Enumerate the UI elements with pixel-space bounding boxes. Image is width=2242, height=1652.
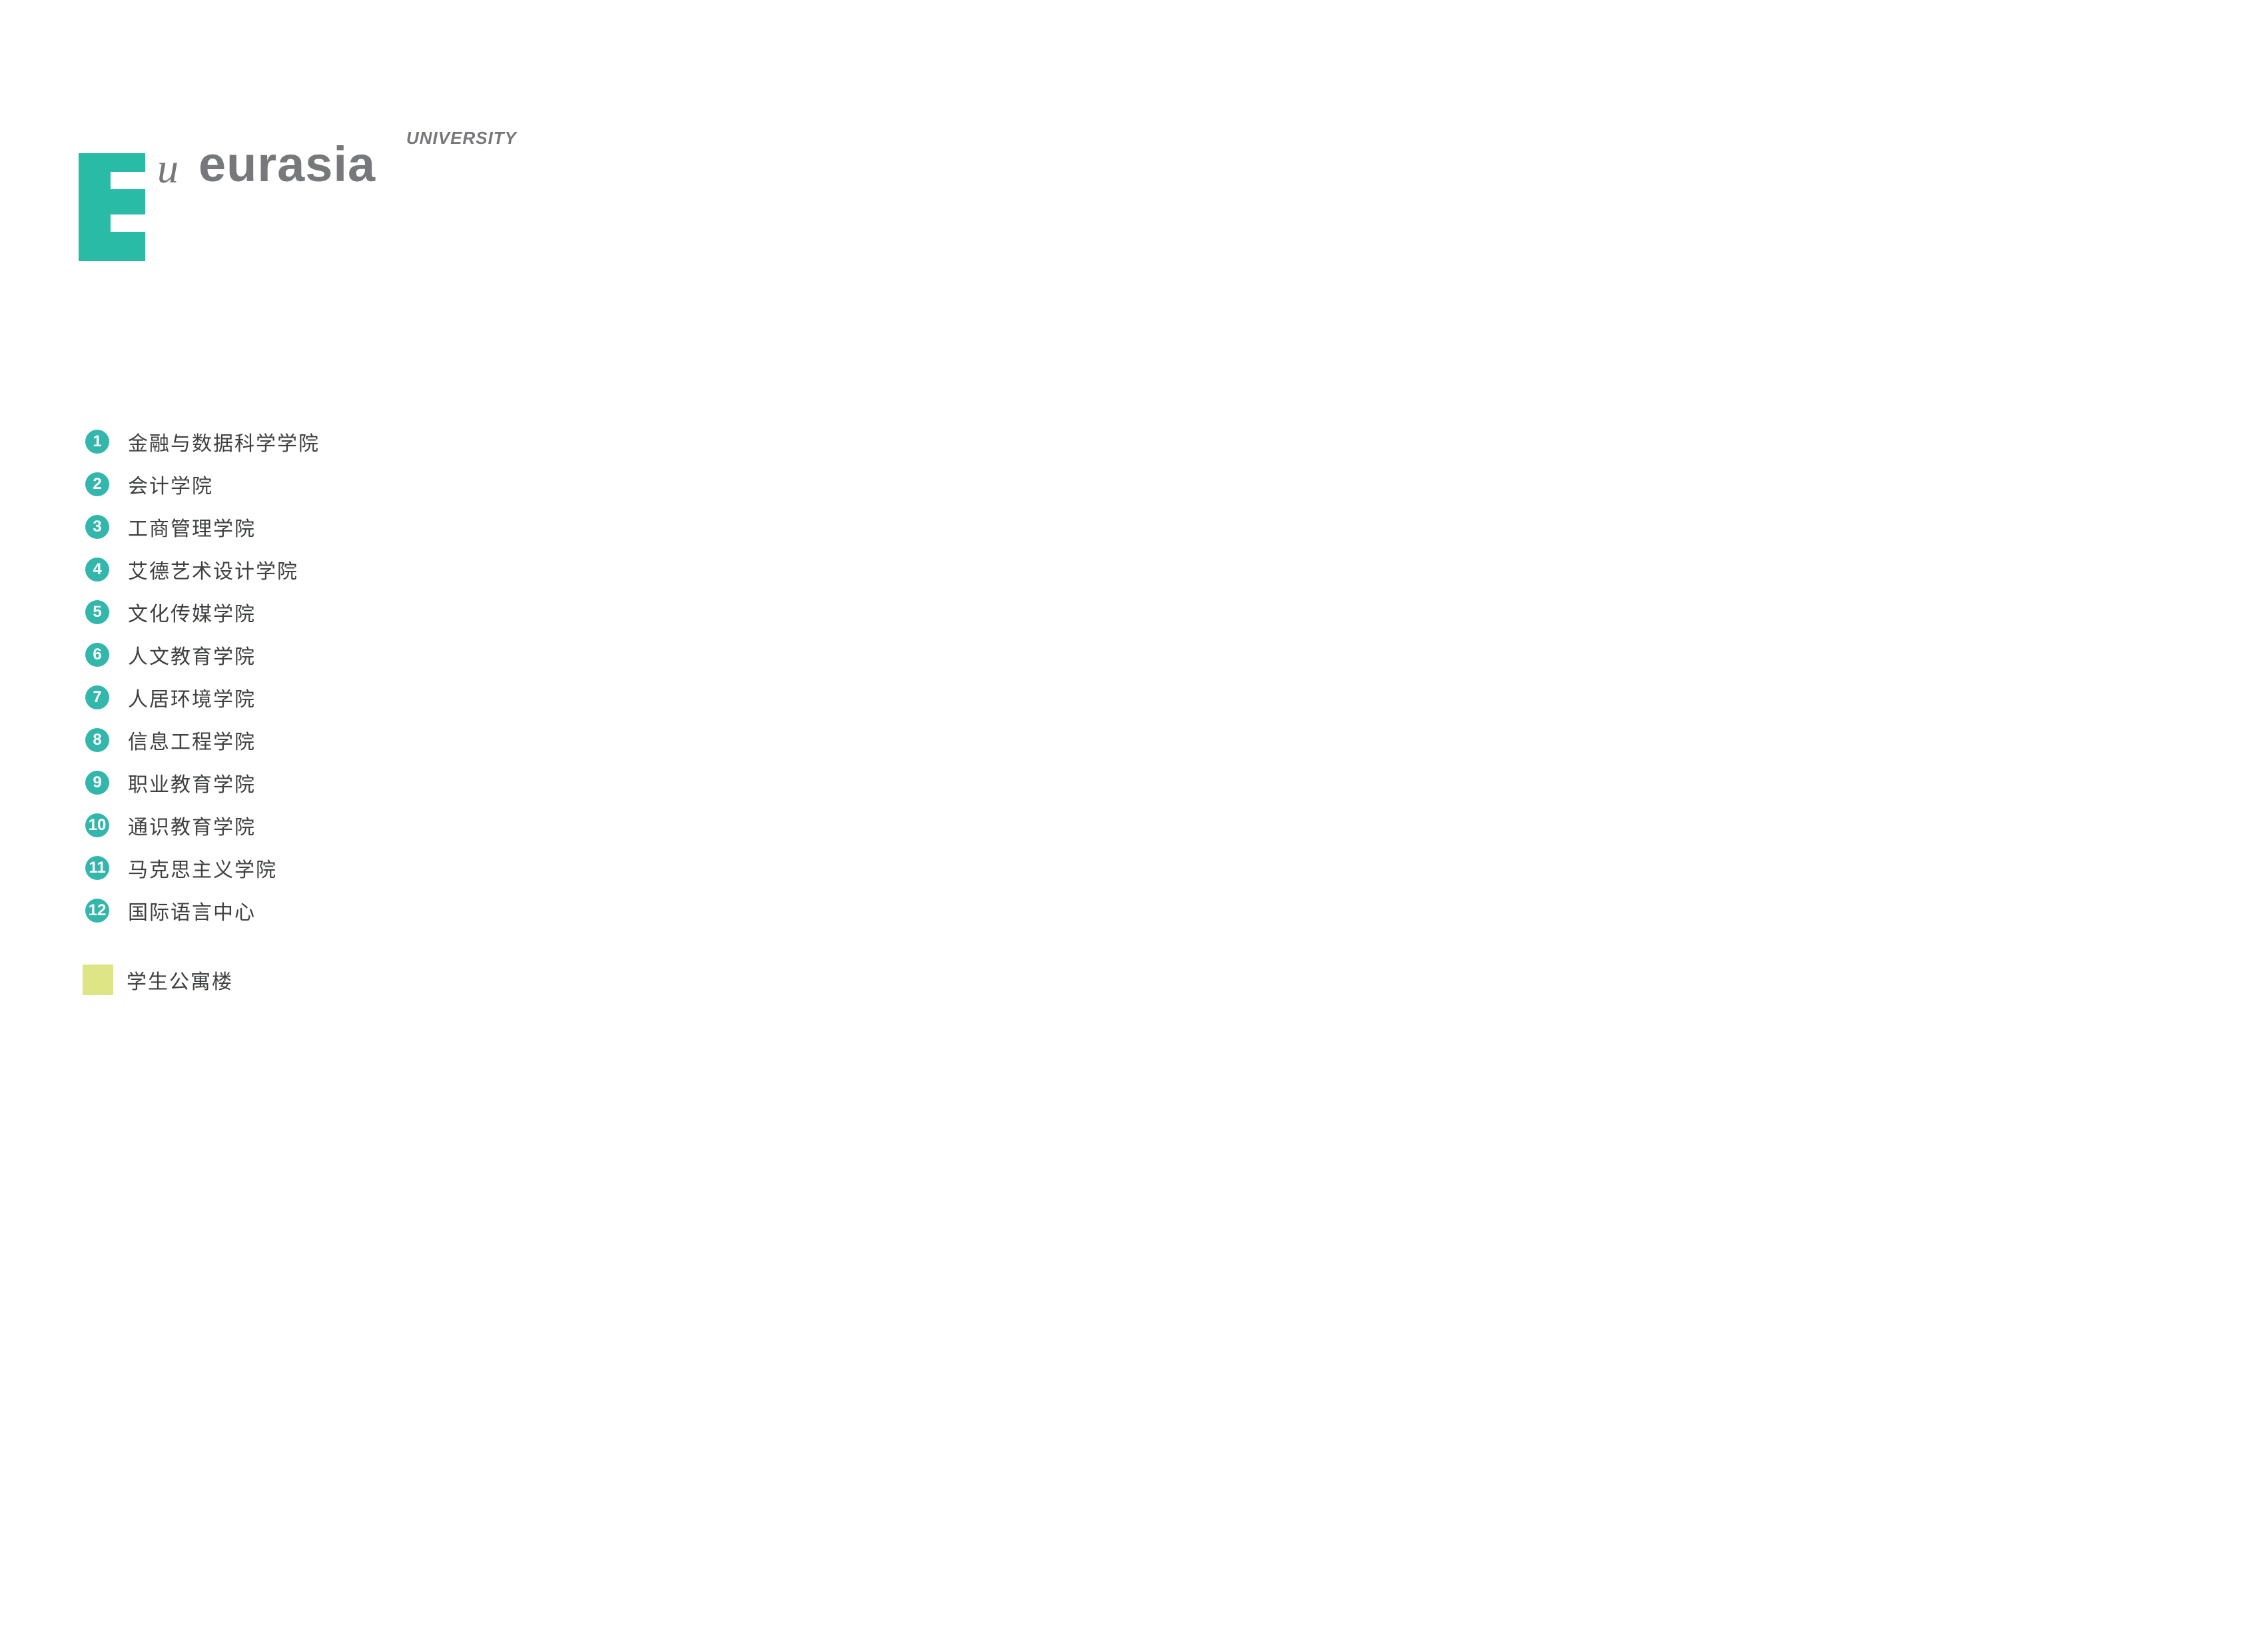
campus-map-page: { "palette":{ "campus":"#c5d3df","roadA"… (0, 0, 2242, 1652)
campus-map (0, 0, 2242, 1652)
